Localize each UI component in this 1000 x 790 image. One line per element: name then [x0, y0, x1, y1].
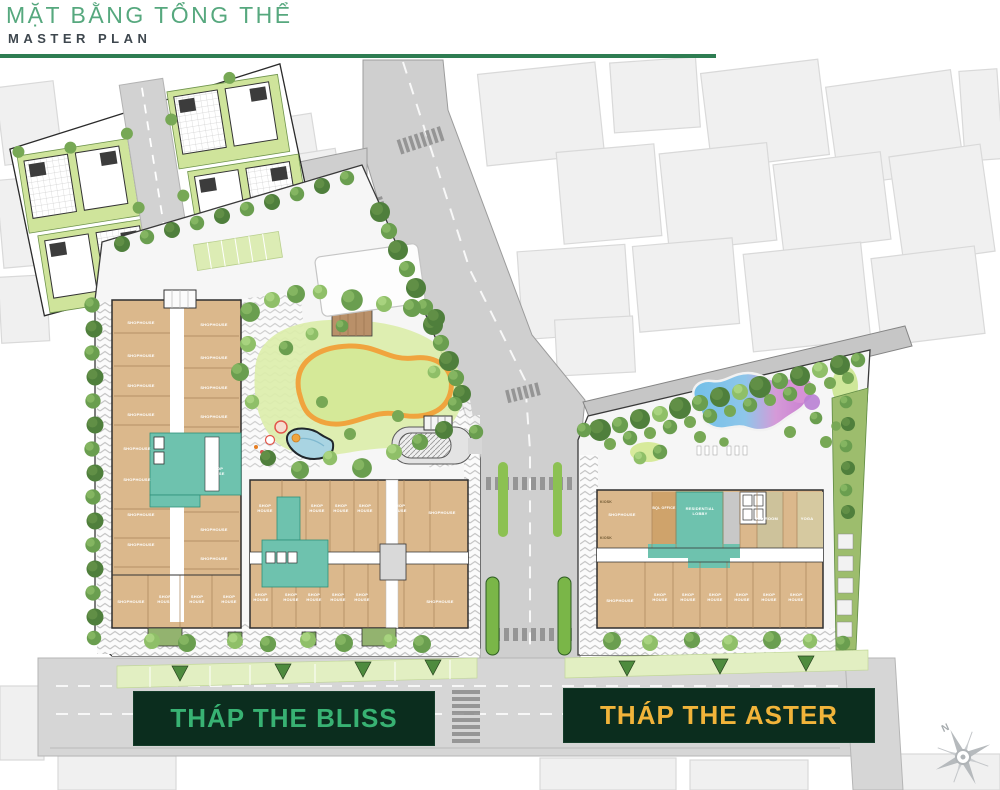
unit-label-shophouse: SHOPHOUSE [196, 385, 232, 390]
room-label-office: BQL OFFICE [650, 506, 678, 510]
unit-label-shophouse: SHOPHOUSE [112, 599, 150, 604]
unit-label-shop-house: SHOP HOUSE [730, 592, 754, 602]
unit-label-shophouse: SHOPHOUSE [196, 414, 232, 419]
unit-label-shop-house: SHOP HOUSE [676, 592, 700, 602]
bliss-tower-banner: THÁP THE BLISS [133, 691, 435, 746]
unit-label-shop-house: SHOP HOUSE [325, 592, 351, 602]
unit-label-shop-house: SHOP HOUSE [703, 592, 727, 602]
unit-label-shop-house: SHOP HOUSE [328, 503, 354, 513]
site-plan-graphic [0, 0, 1000, 790]
unit-label-shop-house: SHOP HOUSE [352, 503, 378, 513]
unit-label-shophouse: SHOPHOUSE [196, 527, 232, 532]
unit-label-kiosk: KIOSK [596, 500, 616, 504]
unit-label-shop-house: SHOP HOUSE [204, 466, 230, 476]
unit-label-shop-house: SHOP HOUSE [648, 592, 672, 602]
unit-label-shophouse: SHOPHOUSE [124, 383, 158, 388]
unit-label-shop-house: SHOP HOUSE [184, 594, 210, 604]
unit-label-shop-house: SHOP HOUSE [386, 503, 412, 513]
unit-label-shophouse: SHOPHOUSE [196, 355, 232, 360]
unit-label-shop-house: SHOP HOUSE [349, 592, 375, 602]
unit-label-shop-house: SHOP HOUSE [301, 592, 327, 602]
unit-label-shop-house: SHOP HOUSE [248, 592, 274, 602]
unit-label-kiosk: KIOSK [596, 536, 616, 540]
page-subtitle: MASTER PLAN [8, 31, 151, 46]
unit-label-shop-house: SHOP HOUSE [304, 503, 330, 513]
unit-label-shop-house: SHOP HOUSE [784, 592, 808, 602]
unit-label-shophouse: SHOPHOUSE [196, 556, 232, 561]
unit-label-shophouse: SHOPHOUSE [196, 322, 232, 327]
unit-label-shophouse: SHOPHOUSE [416, 599, 464, 604]
unit-label-shophouse: SHOPHOUSE [598, 598, 642, 603]
unit-label-shophouse: SHOPHOUSE [124, 512, 158, 517]
unit-label-shop-house: SHOP HOUSE [252, 503, 278, 513]
aster-tower-banner: THÁP THE ASTER [563, 688, 875, 743]
page-title: MẶT BẰNG TỔNG THỂ [6, 2, 293, 29]
unit-label-shophouse: SHOPHOUSE [124, 412, 158, 417]
unit-label-shophouse: SHOPHOUSE [600, 512, 644, 517]
master-plan-page: MẶT BẰNG TỔNG THỂ MASTER PLAN THÁP THE B… [0, 0, 1000, 790]
header-rule [0, 54, 716, 58]
room-label-yoga: YOGA [792, 516, 822, 521]
unit-label-shophouse: SHOPHOUSE [120, 477, 154, 482]
unit-label-shophouse: SHOPHOUSE [420, 510, 464, 515]
room-label-residential-lobby: RESIDENTIAL LOBBY [678, 506, 722, 516]
unit-label-shop-house: SHOP HOUSE [757, 592, 781, 602]
unit-label-shop-house: SHOP HOUSE [216, 594, 242, 604]
bliss-west-building [112, 290, 241, 628]
unit-label-shophouse: SHOPHOUSE [124, 353, 158, 358]
unit-label-shophouse: SHOPHOUSE [124, 542, 158, 547]
unit-label-shophouse: SHOPHOUSE [120, 446, 154, 451]
room-label-kid-room: KID ROOM [750, 516, 784, 521]
unit-label-shophouse: SHOPHOUSE [124, 320, 158, 325]
unit-label-shop-house: SHOP HOUSE [152, 594, 178, 604]
